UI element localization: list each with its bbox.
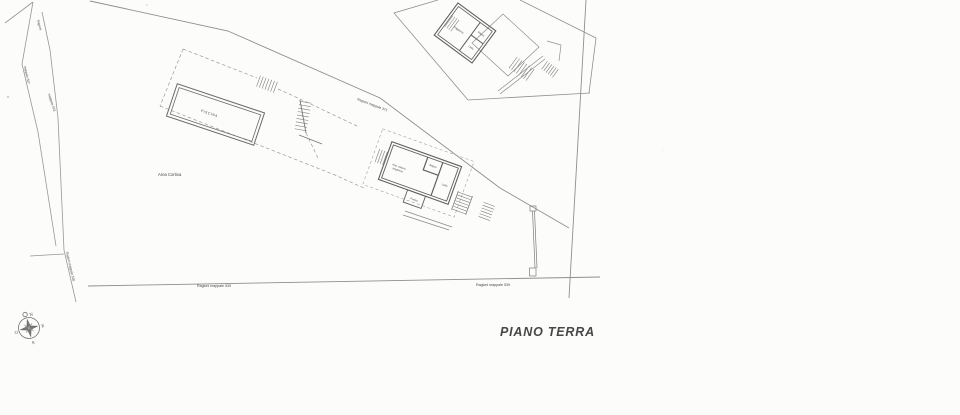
road-strip-labels: Ragioni mappale 537 mappale 533 Ragioni … xyxy=(23,19,76,282)
room-label-letto: Letto xyxy=(441,182,448,188)
inset-ramp xyxy=(498,56,545,94)
boundary-fence xyxy=(530,206,538,276)
inset-boundaries xyxy=(394,0,596,100)
road-strip xyxy=(5,2,76,302)
pool-stair-hatch xyxy=(256,76,277,93)
building-setback-dashed xyxy=(363,129,474,217)
compass-o: O xyxy=(14,329,19,335)
scan-speckles xyxy=(7,4,663,150)
inset-building: Soggiorno Bagno Letto xyxy=(434,3,496,63)
parcel-label-539-left: Ragioni mappale 539 xyxy=(197,284,231,288)
pool-label: PISCINA xyxy=(200,109,218,118)
terrace-stair-hatch xyxy=(295,101,312,131)
site-plan-svg: Ragioni mappale 537 mappale 533 Ragioni … xyxy=(0,0,960,415)
inset-room-label-a: Soggiorno xyxy=(453,25,465,36)
swimming-pool: PISCINA xyxy=(166,84,264,145)
plan-title: PIANO TERRA xyxy=(500,325,595,339)
parcel-label-539-right: Ragioni mappale 539 xyxy=(476,283,510,287)
parcel-label: Ragioni xyxy=(36,19,43,31)
room-label-bagno: Bagno xyxy=(429,163,438,169)
main-building: Ang. cottura soggiorno Bagno Letto Porti… xyxy=(362,129,474,220)
inset-stairs-2 xyxy=(542,61,559,77)
compass-e: E xyxy=(41,323,45,329)
parcel-boundaries xyxy=(88,0,600,298)
se-stair-hatch-b xyxy=(479,202,495,220)
compass-n: N xyxy=(29,311,34,317)
room-label-portico: Portico xyxy=(410,196,419,203)
compass-s: S xyxy=(31,340,35,346)
area-cortiva-label: Area Cortiva xyxy=(158,172,182,177)
parcel-label-371: Ragioni mappale 371 xyxy=(357,97,388,112)
scanned-site-plan: Ragioni mappale 537 mappale 533 Ragioni … xyxy=(0,0,960,415)
entry-stair-hatch xyxy=(375,149,387,165)
compass-rose: N E S O xyxy=(11,309,48,348)
